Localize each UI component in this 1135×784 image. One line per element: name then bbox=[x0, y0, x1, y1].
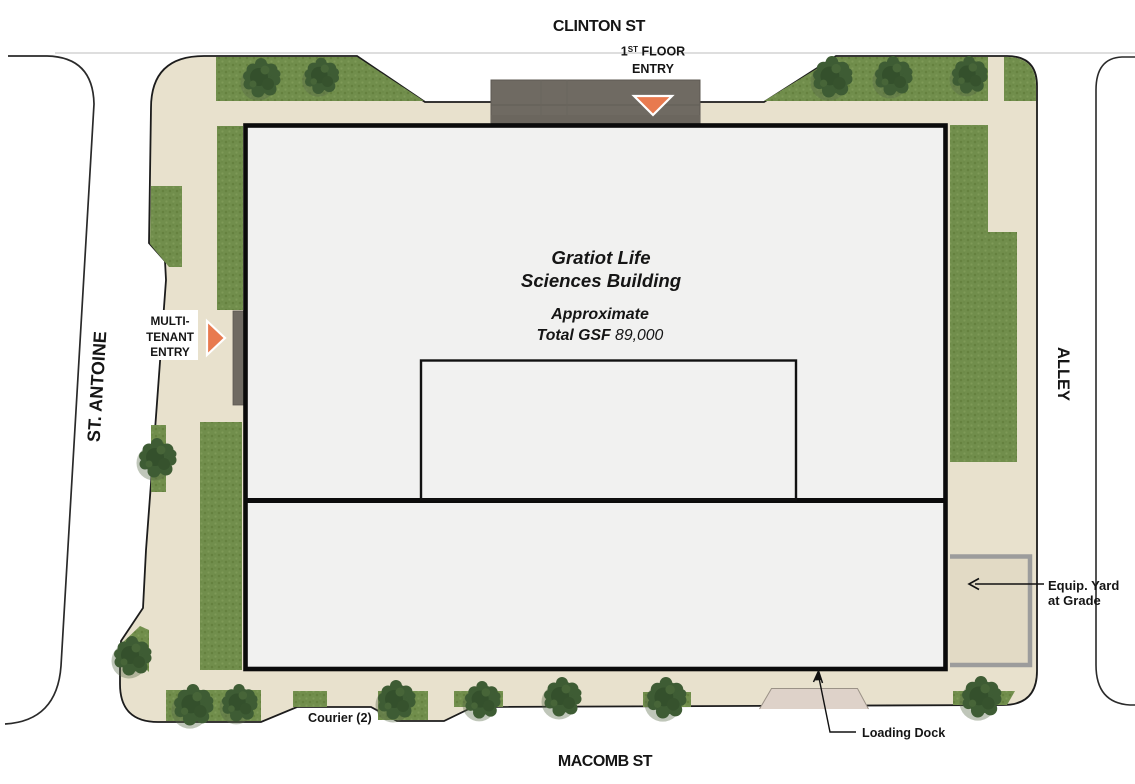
svg-text:Courier (2): Courier (2) bbox=[308, 711, 372, 725]
svg-text:CLINTON ST: CLINTON ST bbox=[553, 18, 646, 35]
svg-text:MULTI-: MULTI- bbox=[150, 314, 189, 328]
svg-text:ALLEY: ALLEY bbox=[1054, 347, 1072, 401]
svg-text:Equip. Yard: Equip. Yard bbox=[1048, 578, 1119, 593]
svg-text:MACOMB ST: MACOMB ST bbox=[558, 753, 653, 770]
svg-text:Total GSF 89,000: Total GSF 89,000 bbox=[537, 327, 664, 344]
svg-text:at Grade: at Grade bbox=[1048, 593, 1101, 608]
svg-text:Loading Dock: Loading Dock bbox=[862, 726, 946, 740]
svg-text:Gratiot Life: Gratiot Life bbox=[551, 247, 650, 268]
svg-text:Approximate: Approximate bbox=[550, 306, 649, 323]
svg-text:ENTRY: ENTRY bbox=[150, 345, 190, 359]
svg-text:Sciences Building: Sciences Building bbox=[521, 270, 682, 291]
svg-text:ENTRY: ENTRY bbox=[632, 62, 675, 76]
svg-text:TENANT: TENANT bbox=[146, 330, 195, 344]
